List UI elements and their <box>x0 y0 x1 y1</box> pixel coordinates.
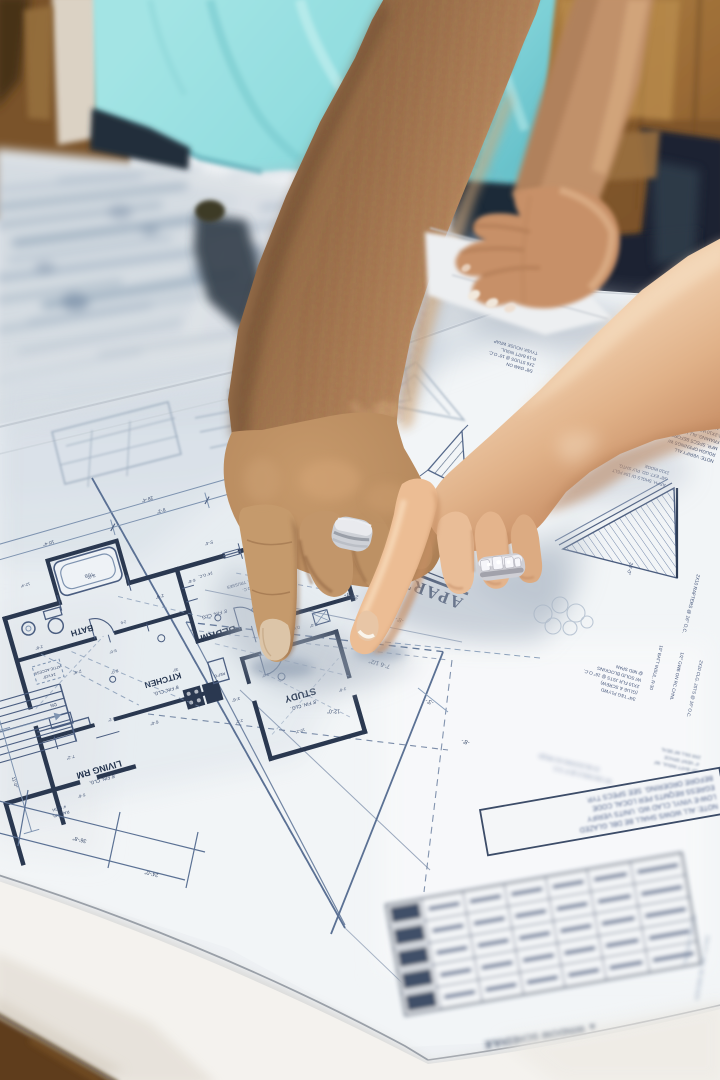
svg-text:12ʹ-0″: 12ʹ-0″ <box>327 708 340 715</box>
